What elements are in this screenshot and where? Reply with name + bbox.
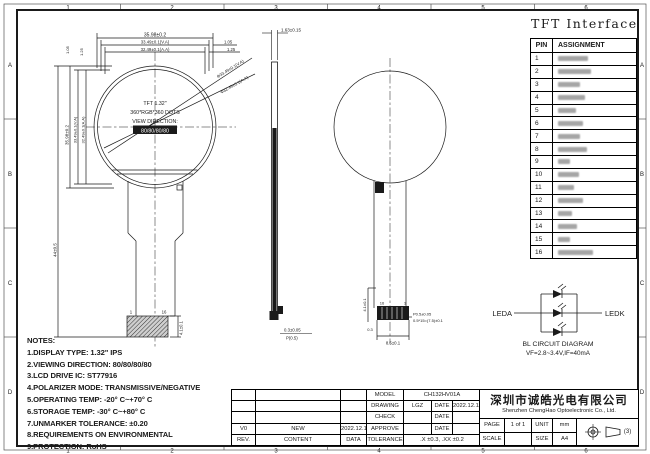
rev-column-label: REV. [232,434,256,445]
note-item: 4.POLARIZER MODE: TRANSMISSIVE/NEGATIVE [27,382,242,394]
zone-row-label: B [640,172,644,178]
note-item: 6.STORAGE TEMP: -30° C~+80° C [27,406,242,418]
drawing-date-value: 2022.12.11 [453,401,481,412]
pin-assignment-table: PIN ASSIGNMENT 12345678910111213141516 [530,38,637,259]
zone-col-label: 3 [274,449,278,454]
zone-row-label: C [8,281,13,287]
pin-row: 16 [531,246,636,258]
drawing-sheet: 1 2 3 4 5 6 1 2 3 4 5 6 A B C D A B C D [0,0,650,454]
pin-number: 9 [531,156,553,168]
pin-row: 14 [531,220,636,233]
pin-assignment-redacted [553,224,636,229]
company-cell: 深圳市诚皓光电有限公司 Shenzhen ChengHao Optoelectr… [480,390,639,419]
panel-viewing-angles: 80/80/80/80 [141,128,169,134]
back-view: 16 1 4.1±0.1 0.3 8.5±0.1 P0.5±0.05 0.5*1… [334,58,446,346]
model-label: MODEL [367,390,404,401]
zone-col-label: 5 [481,449,485,454]
pin-number: 16 [531,246,553,258]
led-anode-label: LEDA [492,309,512,318]
pin-number: 7 [531,130,553,142]
company-name-cn: 深圳市诚皓光电有限公司 [480,393,638,407]
title-block-left: MODEL CH132HV01A DRAWING LGZ DATE 2022.1… [231,389,481,446]
projection-angle-label: (3) [624,429,631,435]
pin-assignment-redacted [553,147,636,152]
page-label: PAGE [480,419,505,432]
pin-assignment-redacted [553,198,636,203]
pin-row: 8 [531,143,636,156]
rev-content-value: NEW [256,423,341,434]
pin-row: 15 [531,233,636,246]
pin-column-header: PIN [531,39,553,52]
dim-outline-width: 35.98±0.2 [144,33,166,39]
panel-view-direction-label: VIEW DIRECTION: [132,119,178,125]
illegible-text-smudge [558,69,591,74]
pin-row: 11 [531,182,636,195]
pin16-marker-back: 16 [380,301,385,306]
illegible-text-smudge [558,56,588,61]
pin-assignment-redacted [553,185,636,190]
pin-table-header: PIN ASSIGNMENT [531,39,636,53]
pin1-marker-back: 1 [404,301,407,306]
illegible-text-smudge [558,121,583,126]
illegible-text-smudge [558,185,574,190]
pin-number: 8 [531,143,553,155]
note-item: 3.LCD DRIVE IC: ST77916 [27,370,242,382]
illegible-text-smudge [558,134,580,139]
pin-number: 14 [531,220,553,232]
dim-outline-height: 35.98±0.2 [65,125,70,145]
pin-number: 2 [531,66,553,78]
pin-assignment-redacted [553,95,636,100]
pin-assignment-redacted [553,56,636,61]
zone-row-label: D [640,390,645,396]
pin-row: 13 [531,208,636,221]
dim-va-diameter: Φ33.49±0.1(V.A) [216,58,246,79]
zone-row-label: A [640,63,644,69]
pin-row: 12 [531,195,636,208]
illegible-text-smudge [558,147,587,152]
pin-row: 10 [531,169,636,182]
dim-total-height: 44±0.5 [53,243,58,257]
pin1-marker: 1 [130,310,133,315]
zone-col-label: 4 [377,449,381,454]
dim-pin-pitch: P0.5±0.05 [413,312,432,317]
pin-row: 5 [531,105,636,118]
pin-row: 7 [531,130,636,143]
title-block-right: 深圳市诚皓光电有限公司 Shenzhen ChengHao Optoelectr… [479,389,639,446]
check-label: CHECK [367,412,404,423]
panel-type-label: TFT 1.32" [143,101,166,107]
dim-connector-width: 8.5±0.1 [386,341,401,346]
date-label: DATE [432,423,453,434]
content-column-label: CONTENT [256,434,341,445]
pin-number: 15 [531,233,553,245]
pin-row: 9 [531,156,636,169]
pin-number: 13 [531,208,553,220]
scale-label: SCALE [480,432,505,445]
pin-row: 3 [531,79,636,92]
pin-number: 12 [531,195,553,207]
zone-row-label: D [8,390,13,396]
rev-date-value: 2022.12.11 [341,423,367,434]
pin-number: 6 [531,117,553,129]
dim-connector-height-back: 4.1±0.1 [362,298,367,312]
drawing-value: LGZ [404,401,432,412]
pin-assignment-redacted [553,237,636,242]
dim-pin-span: 0.5*15=(7.5)±0.1 [413,318,444,323]
bl-spec: VF=2.8~3.4V,IF=40mA [526,350,591,357]
scale-value [505,432,532,445]
dim-connector-height: 4.1±0.1 [179,320,184,335]
date-label: DATE [432,401,453,412]
side-view: 1.63±0.15 0.3±0.05 P(0.5) [262,28,312,341]
illegible-text-smudge [558,95,585,100]
note-item: 8.REQUIREMENTS ON ENVIRONMENTAL [27,429,242,441]
bl-caption: BL CIRCUIT DIAGRAM [523,341,594,348]
assignment-column-header: ASSIGNMENT [553,42,636,49]
date-label: DATE [432,412,453,423]
notes-title: NOTES: [27,335,242,347]
unit-label: UNIT [532,419,553,432]
data-column-label: DATA [341,434,367,445]
pin-row: 6 [531,117,636,130]
pin-number: 11 [531,182,553,194]
size-label: SIZE [532,432,553,445]
rev-value: V0 [232,423,256,434]
pin-assignment-redacted [553,82,636,87]
note-item: 1.DISPLAY TYPE: 1.32" IPS [27,347,242,359]
pin-number: 5 [531,105,553,117]
page-value: 1 of 1 [505,419,532,432]
dim-aa-diameter: Φ32.49±0.1(A.A) [219,74,249,94]
pin-rows: 12345678910111213141516 [531,53,636,258]
illegible-text-smudge [558,237,570,242]
unit-value: mm [553,419,577,432]
dim-offset-left-2: 1.25 [79,47,84,56]
illegible-text-smudge [558,211,572,216]
dim-aa-height: 32.49±0.1(A.A) [81,116,86,144]
drawing-label: DRAWING [367,401,404,412]
note-item: 2.VIEWING DIRECTION: 80/80/80/80 [27,359,242,371]
dim-thickness: 1.63±0.15 [281,28,301,33]
notes-list: 1.DISPLAY TYPE: 1.32" IPS2.VIEWING DIREC… [27,347,242,453]
model-value: CH132HV01A [404,390,481,401]
tolerance-label: TOLERANCE [367,434,404,445]
zone-row-label: C [640,281,645,287]
pin-assignment-redacted [553,172,636,177]
pin-number: 4 [531,92,553,104]
tolerance-value: .X ±0.3, .XX ±0.2 [404,434,481,445]
pin-number: 1 [531,53,553,65]
company-name-en: Shenzhen ChengHao Optoelectronic Co., Lt… [480,407,638,415]
projection-cell: (3) [577,419,639,446]
illegible-text-smudge [558,82,580,87]
dim-offset-left-1: 1.05 [65,45,70,54]
illegible-text-smudge [558,108,576,113]
dim-fpc-thickness: 0.3±0.05 [284,328,301,333]
third-angle-projection-icon [584,422,622,442]
led-cathode-label: LEDK [605,309,625,318]
zone-row-label: A [8,63,12,69]
pin-assignment-redacted [553,159,636,164]
note-item: 5.OPERATING TEMP: -20° C~+70° C [27,394,242,406]
pin-row: 2 [531,66,636,79]
pin-number: 10 [531,169,553,181]
panel-resolution-label: 360*RGB*360 DOTS [130,110,180,116]
illegible-text-smudge [558,159,570,164]
pin-assignment-redacted [553,211,636,216]
illegible-text-smudge [558,198,583,203]
note-item: 7.UNMARKER TOLERANCE: ±0.20 [27,418,242,430]
dim-offset-2: 1.25 [227,47,236,52]
approve-label: APPROVE [367,423,404,434]
dim-edge-margin: 0.3 [367,327,373,332]
tft-interface-title: TFT Interface [531,16,638,31]
pin-row: 1 [531,53,636,66]
pin16-marker: 16 [162,310,167,315]
illegible-text-smudge [558,224,577,229]
pin-number: 3 [531,79,553,91]
zone-row-label: B [8,172,12,178]
pin-assignment-redacted [553,250,636,255]
dim-fpc-pitch: P(0.5) [286,336,298,341]
pin-row: 4 [531,92,636,105]
front-view [54,33,255,348]
bl-circuit-diagram: LEDA LEDK BL CIRCUIT DIAGRAM VF=2.8~3.4V… [492,284,624,357]
note-item: 9.PROTECTION: RoHS [27,441,242,453]
size-value: A4 [553,432,577,445]
dim-aa-width: 32.49±0.1(A.A) [141,47,170,52]
dim-va-width: 33.49±0.1(V.A) [141,40,170,45]
notes-block: NOTES: 1.DISPLAY TYPE: 1.32" IPS2.VIEWIN… [27,335,242,453]
dim-va-height: 33.49±0.1(V.A) [73,116,78,143]
dim-offset-1: 1.05 [224,40,233,45]
pin-assignment-redacted [553,69,636,74]
illegible-text-smudge [558,250,593,255]
zone-col-label: 6 [584,449,588,454]
illegible-text-smudge [558,172,579,177]
pin-assignment-redacted [553,134,636,139]
pin-assignment-redacted [553,108,636,113]
pin-assignment-redacted [553,121,636,126]
